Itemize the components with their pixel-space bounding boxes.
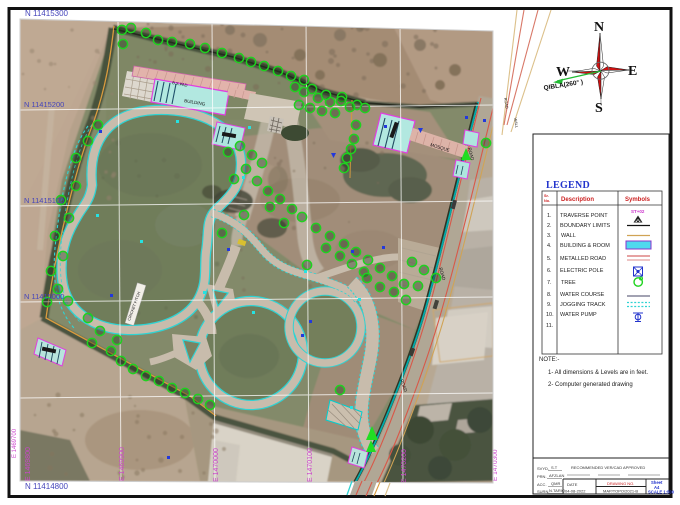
svg-text:W: W [556,65,570,80]
svg-text:N 11414800: N 11414800 [25,482,69,491]
svg-text:6.: 6. [547,268,552,274]
svg-text:TREE: TREE [561,280,576,286]
svg-text:E 1469700: E 1469700 [12,428,18,458]
svg-text:S.T: S.T [551,465,558,470]
svg-text:ST+02: ST+02 [631,209,645,214]
svg-text:10.: 10. [546,312,554,318]
svg-text:S: S [595,101,603,116]
svg-text:04-08-2022: 04-08-2022 [565,489,586,494]
svg-text:TRAVERSE POINT: TRAVERSE POINT [560,213,608,219]
svg-text:N 11415200: N 11415200 [24,100,64,109]
svg-text:QMR: QMR [551,481,560,486]
svg-text:WALL: WALL [561,233,576,239]
svg-text:METALLED ROAD: METALLED ROAD [560,256,606,262]
svg-text:BUILDING & ROOM: BUILDING & ROOM [560,243,610,249]
svg-text:11.: 11. [546,323,554,329]
svg-text:NOTE:-: NOTE:- [539,357,559,363]
svg-text:WATER COURSE: WATER COURSE [560,292,605,298]
svg-text:DRAWING NO.: DRAWING NO. [607,481,634,486]
svg-text:No.: No. [544,199,550,203]
svg-text:E 1470100: E 1470100 [307,448,314,482]
svg-text:WATER PUMP: WATER PUMP [560,312,597,318]
svg-text:E 1470000: E 1470000 [213,448,220,482]
svg-text:5.: 5. [547,256,552,262]
svg-text:2- Computer generated drawing: 2- Computer generated drawing [548,382,633,388]
svg-text:Description: Description [561,197,594,203]
svg-text:DATE: DATE [567,482,578,487]
svg-text:2.: 2. [547,223,552,229]
svg-text:Sr.: Sr. [544,194,549,198]
svg-text:AFZLAN: AFZLAN [549,473,564,478]
svg-text:E 1470200: E 1470200 [401,449,408,483]
svg-text:SCALE 1:500: SCALE 1:500 [648,490,675,495]
svg-text:LEGEND: LEGEND [546,180,590,191]
svg-text:3.: 3. [547,233,552,239]
svg-text:9.: 9. [547,302,552,308]
svg-text:1.: 1. [547,213,552,219]
svg-text:N.TARIQ: N.TARIQ [549,488,565,493]
svg-text:ACC.: ACC. [537,482,547,487]
svg-text:E: E [628,64,637,79]
svg-text:N 11415300: N 11415300 [25,9,69,18]
svg-text:1- All dimensions & Levels are: 1- All dimensions & Levels are in feet. [548,370,648,376]
svg-text:N: N [594,20,604,35]
svg-text:N 11415000: N 11415000 [24,292,64,301]
svg-text:8.: 8. [547,292,552,298]
svg-text:JOGGING TRACK: JOGGING TRACK [560,302,606,308]
svg-text:MAP/TOPO/2021-B: MAP/TOPO/2021-B [603,489,638,494]
svg-text:7.: 7. [547,280,552,286]
svg-text:E 1469800: E 1469800 [25,447,32,481]
svg-text:RECOMMENDED VER/CAD APP: RECOMMENDED VER/CAD APPROVED [571,465,645,470]
svg-text:BOUNDARY LIMITS: BOUNDARY LIMITS [560,223,611,229]
svg-text:PRN.: PRN. [537,474,547,479]
svg-text:SVYD.: SVYD. [537,466,549,471]
svg-text:4.: 4. [547,243,552,249]
svg-text:ELECTRIC POLE: ELECTRIC POLE [560,268,604,274]
svg-text:Symbols: Symbols [625,197,651,203]
svg-text:E 1469900: E 1469900 [119,447,126,481]
svg-text:N 11415100: N 11415100 [24,196,64,205]
